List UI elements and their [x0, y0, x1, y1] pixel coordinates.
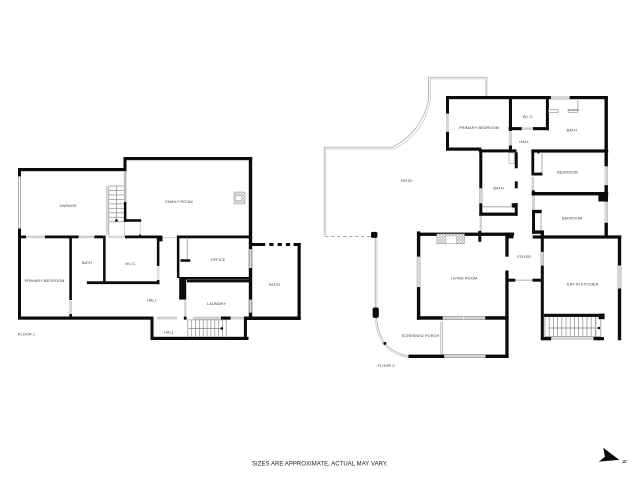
svg-text:BATH: BATH	[567, 129, 577, 133]
svg-text:PRIMARY BEDROOM: PRIMARY BEDROOM	[459, 126, 499, 130]
svg-text:N: N	[620, 460, 626, 464]
svg-text:FAMILY ROOM: FAMILY ROOM	[165, 200, 192, 204]
svg-text:PRIMARY BEDROOM: PRIMARY BEDROOM	[25, 279, 65, 283]
svg-text:PATIO: PATIO	[401, 179, 412, 183]
svg-text:OFFICE: OFFICE	[211, 258, 226, 262]
svg-text:LIVING ROOM: LIVING ROOM	[451, 276, 478, 280]
svg-text:FLOOR 1: FLOOR 1	[18, 333, 35, 337]
svg-text:HALL: HALL	[519, 140, 530, 144]
svg-text:HALL: HALL	[164, 331, 175, 335]
svg-text:BATH: BATH	[493, 186, 503, 190]
svg-text:HALL: HALL	[147, 299, 158, 303]
svg-text:LAUNDRY: LAUNDRY	[207, 302, 226, 306]
svg-text:BEDROOM: BEDROOM	[562, 217, 583, 221]
svg-text:BEDROOM: BEDROOM	[557, 171, 578, 175]
svg-text:SIZES ARE APPROXIMATE, ACTUAL: SIZES ARE APPROXIMATE, ACTUAL MAY VARY.	[252, 461, 388, 467]
svg-text:EAT-IN KITCHEN: EAT-IN KITCHEN	[567, 282, 599, 286]
svg-text:SCREENED PORCH: SCREENED PORCH	[402, 334, 440, 338]
svg-text:W.I.C.: W.I.C.	[523, 115, 534, 119]
svg-text:PATIO: PATIO	[269, 283, 280, 287]
svg-text:W.I.C.: W.I.C.	[125, 262, 136, 266]
svg-text:GARAGE: GARAGE	[59, 204, 76, 208]
svg-text:FLOOR 2: FLOOR 2	[378, 364, 395, 368]
svg-text:FOYER: FOYER	[517, 255, 531, 259]
svg-text:BATH: BATH	[82, 261, 92, 265]
